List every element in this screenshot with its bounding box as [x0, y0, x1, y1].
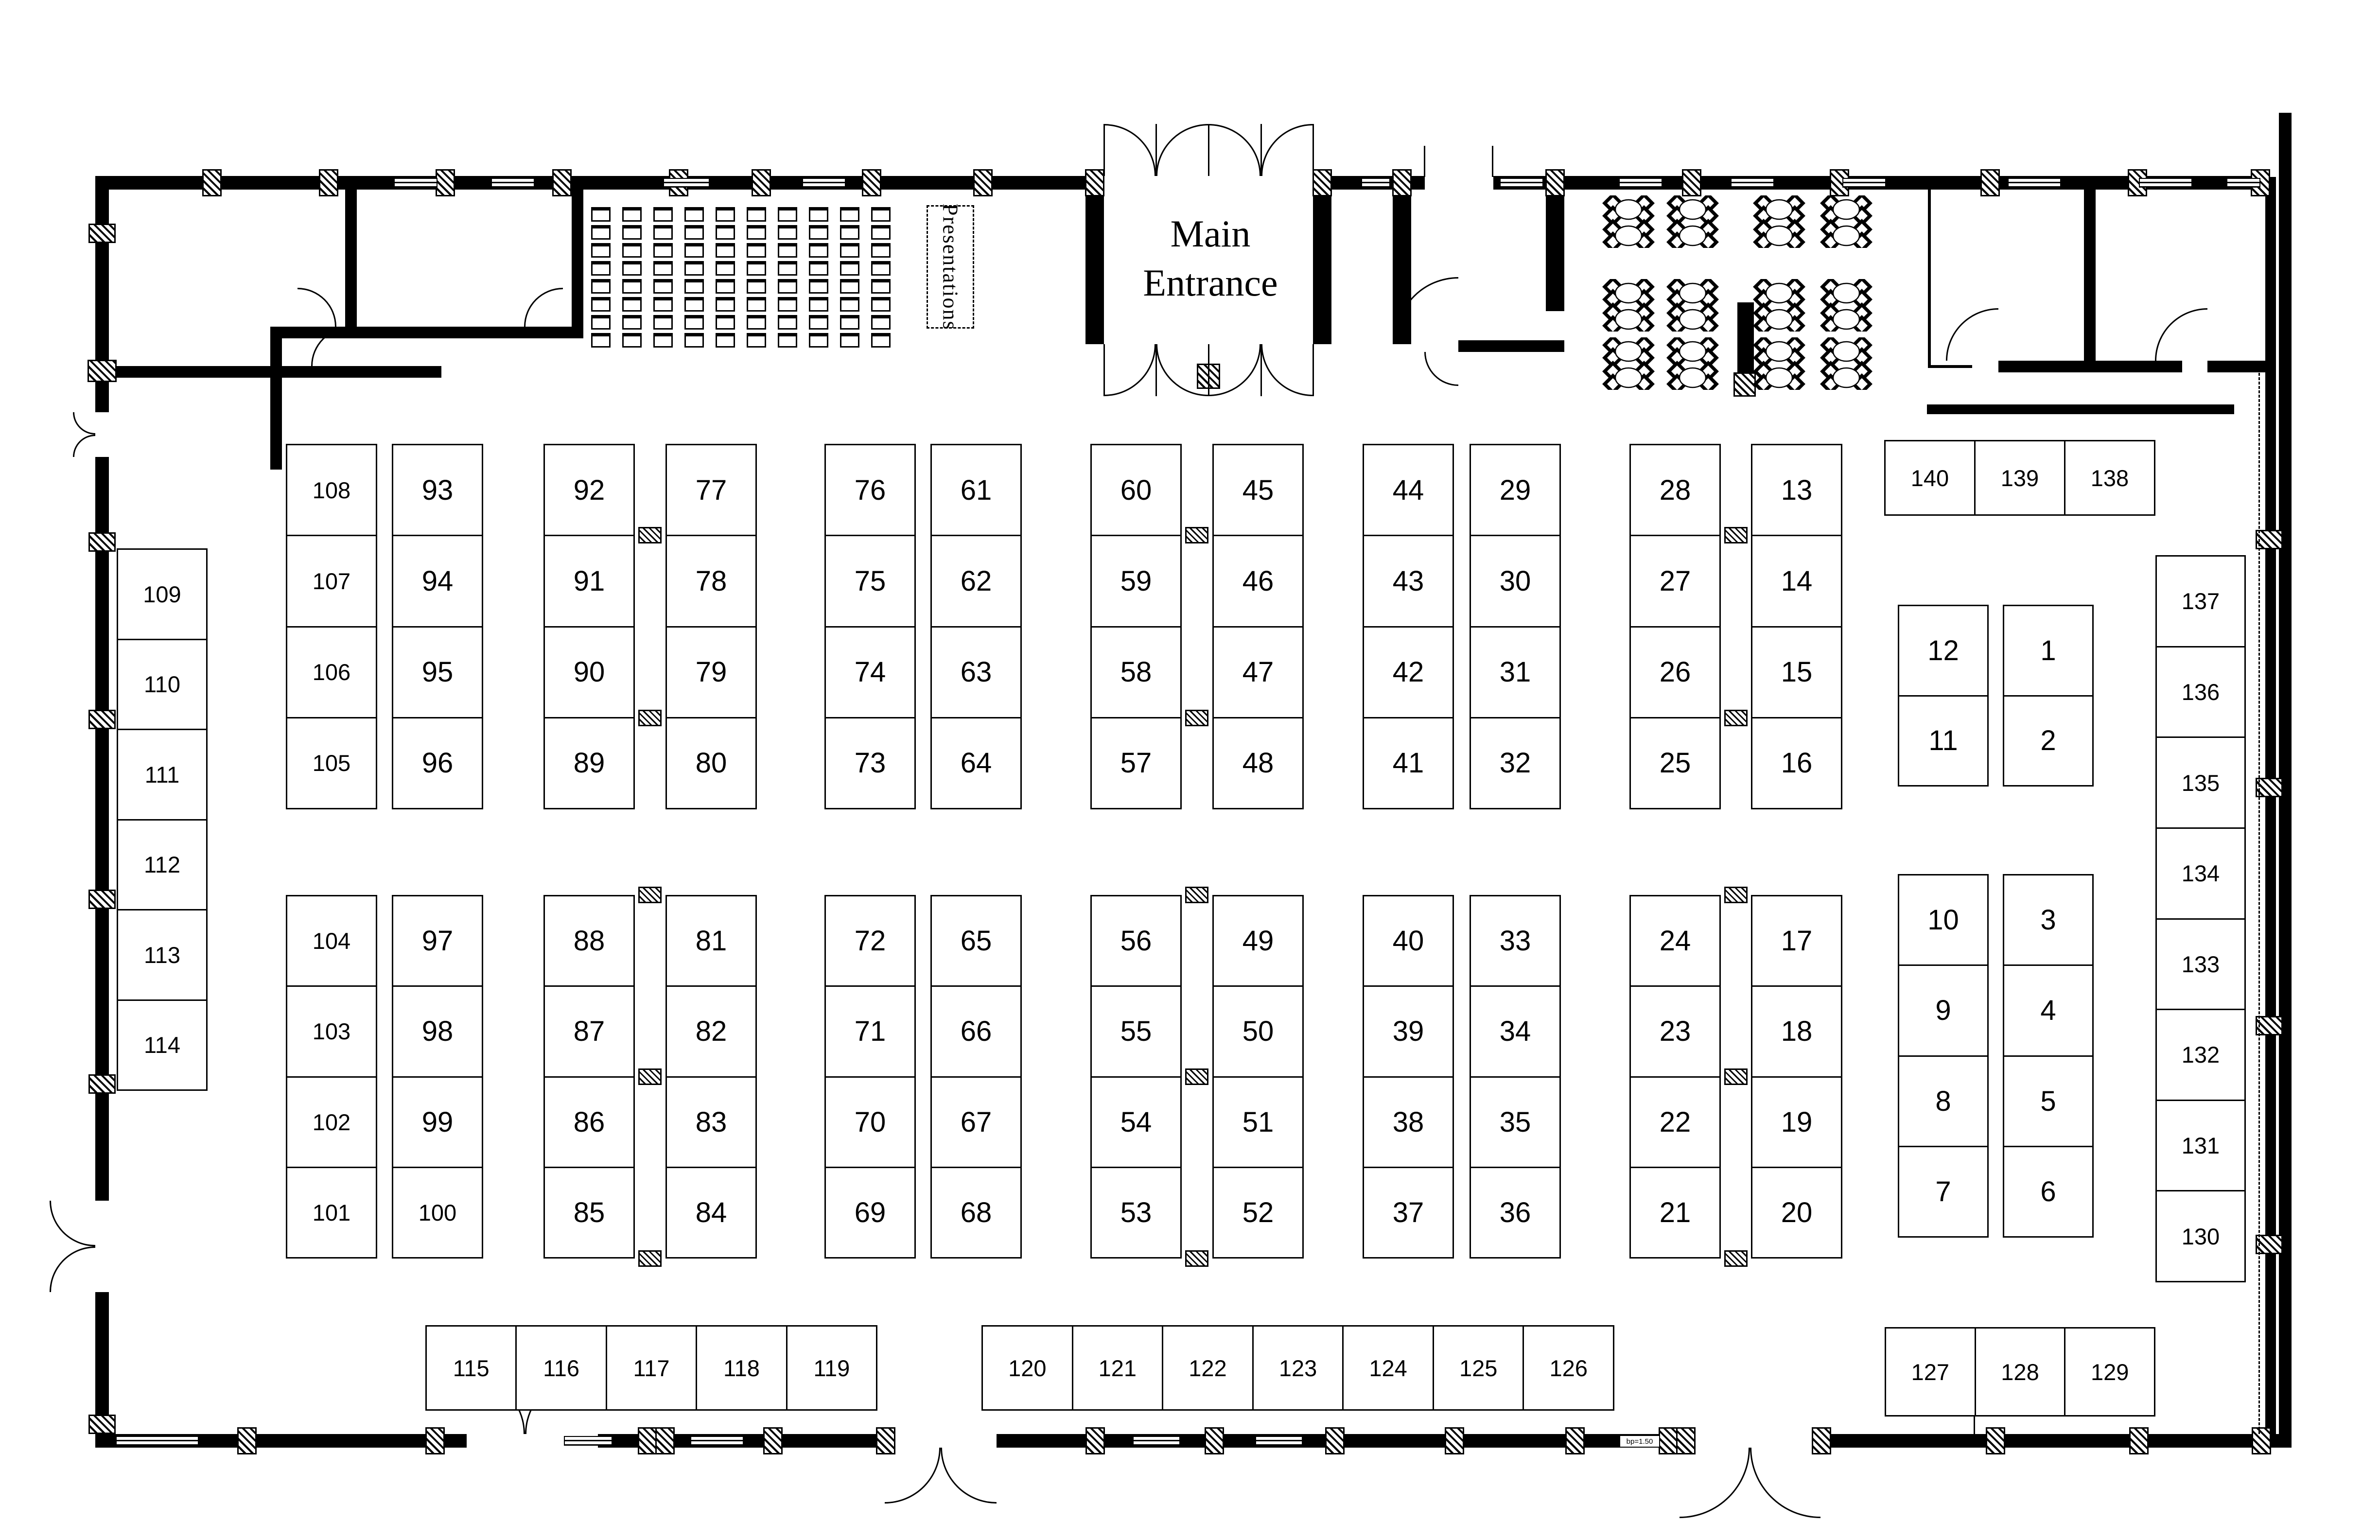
booth-59: 59: [1092, 535, 1180, 626]
presentation-chair: [622, 225, 642, 240]
booth-column: 137136135134133132131130: [2155, 555, 2246, 1282]
booth-column: 44434241: [1363, 444, 1454, 809]
booth-107: 107: [287, 535, 376, 626]
booth-65: 65: [932, 896, 1020, 985]
booth-35: 35: [1471, 1076, 1559, 1167]
presentation-chair: [684, 225, 704, 240]
structural-pillar: [1724, 527, 1748, 543]
presentation-chair: [747, 207, 766, 222]
booth-97: 97: [393, 896, 482, 985]
wall-line: [1928, 365, 1972, 368]
presentation-chair: [809, 279, 828, 294]
booth-129: 129: [2064, 1329, 2154, 1415]
wall-post: [1682, 169, 1701, 196]
presentation-chair: [622, 207, 642, 222]
window-marker: [802, 178, 846, 188]
booth-72: 72: [826, 896, 914, 985]
structural-pillar: [1185, 527, 1208, 543]
booth-column: 61626364: [930, 444, 1022, 809]
window-marker: [1731, 178, 1774, 188]
booth-10: 10: [1899, 875, 1987, 964]
booth-6: 6: [2004, 1146, 2092, 1236]
window-marker: [491, 178, 535, 188]
presentation-chair: [871, 261, 891, 276]
booth-96: 96: [393, 717, 482, 808]
booth-51: 51: [1214, 1076, 1302, 1167]
window-marker: [1255, 1436, 1303, 1446]
booth-column: 92919089: [543, 444, 635, 809]
table-group: [1819, 337, 1873, 390]
booth-8: 8: [1899, 1055, 1987, 1146]
structural-pillar: [638, 527, 662, 543]
wall-line: [1424, 146, 1425, 177]
booth-75: 75: [826, 535, 914, 626]
booth-27: 27: [1631, 535, 1719, 626]
booth-99: 99: [393, 1076, 482, 1167]
window-marker: [2139, 178, 2192, 188]
booth-110: 110: [118, 639, 206, 729]
presentation-chair: [684, 297, 704, 312]
booth-71: 71: [826, 985, 914, 1076]
booth-55: 55: [1092, 985, 1180, 1076]
booth-column: 45464748: [1212, 444, 1304, 809]
presentation-chair: [778, 207, 797, 222]
booth-column: 60595857: [1090, 444, 1182, 809]
presentation-chair: [653, 297, 673, 312]
wall-post: [1205, 1427, 1224, 1454]
booth-22: 22: [1631, 1076, 1719, 1167]
wall-segment: [95, 176, 1087, 190]
presentation-chair: [622, 315, 642, 330]
booth-95: 95: [393, 626, 482, 717]
presentation-chair: [653, 261, 673, 276]
wall-post: [88, 890, 116, 909]
booth-57: 57: [1092, 717, 1180, 808]
wall-post: [1445, 1427, 1464, 1454]
booth-18: 18: [1752, 985, 1841, 1076]
wall-line: [1928, 177, 1931, 368]
booth-70: 70: [826, 1076, 914, 1167]
booth-column: 56555453: [1090, 895, 1182, 1259]
structural-pillar: [1724, 887, 1748, 903]
booth-45: 45: [1214, 445, 1302, 535]
wall-post: [655, 1427, 675, 1454]
booth-125: 125: [1433, 1327, 1523, 1409]
booth-column: 93949596: [392, 444, 483, 809]
booth-108: 108: [287, 445, 376, 535]
booth-74: 74: [826, 626, 914, 717]
booth-111: 111: [118, 729, 206, 819]
booth-36: 36: [1471, 1167, 1559, 1257]
presentations-area-label: Presentations: [927, 205, 974, 329]
booth-132: 132: [2157, 1009, 2244, 1100]
booth-column: 40393837: [1363, 895, 1454, 1259]
wall-segment: [1998, 361, 2182, 372]
presentation-chair: [591, 333, 611, 348]
presentation-chair: [871, 333, 891, 348]
table-group: [1752, 337, 1806, 390]
booth-128: 128: [1975, 1329, 2065, 1415]
booth-80: 80: [667, 717, 755, 808]
booth-114: 114: [118, 999, 206, 1090]
presentation-chair: [840, 279, 859, 294]
wall-post: [1545, 169, 1565, 196]
booth-124: 124: [1342, 1327, 1433, 1409]
wall-post: [973, 169, 993, 196]
booth-123: 123: [1252, 1327, 1343, 1409]
booth-62: 62: [932, 535, 1020, 626]
table-group: [1601, 337, 1656, 390]
booth-54: 54: [1092, 1076, 1180, 1167]
wall-post: [88, 1074, 116, 1094]
wall-post: [752, 169, 771, 196]
booth-82: 82: [667, 985, 755, 1076]
booth-140: 140: [1886, 441, 1974, 514]
wall-segment: [1458, 340, 1564, 352]
presentation-chair: [684, 315, 704, 330]
structural-pillar: [1185, 710, 1208, 726]
presentation-chair: [716, 207, 735, 222]
wall-post: [88, 710, 116, 729]
booth-122: 122: [1162, 1327, 1252, 1409]
structural-pillar: [1724, 710, 1748, 726]
window-marker: [1133, 1436, 1180, 1446]
presentation-chair: [778, 315, 797, 330]
wall-segment: [1313, 190, 1331, 344]
booth-137: 137: [2157, 557, 2244, 646]
presentation-chair: [809, 261, 828, 276]
booth-21: 21: [1631, 1167, 1719, 1257]
booth-58: 58: [1092, 626, 1180, 717]
window-marker: [394, 178, 437, 188]
presentations-label-text: Presentations: [938, 204, 963, 331]
presentation-chair: [716, 243, 735, 258]
booth-60: 60: [1092, 445, 1180, 535]
presentation-chair: [871, 297, 891, 312]
booth-1: 1: [2004, 606, 2092, 695]
booth-7: 7: [1899, 1146, 1987, 1236]
booth-86: 86: [545, 1076, 633, 1167]
wall-post: [1085, 169, 1104, 196]
presentation-chair: [840, 225, 859, 240]
booth-32: 32: [1471, 717, 1559, 808]
door-arc: [50, 1201, 95, 1246]
booth-9: 9: [1899, 964, 1987, 1055]
booth-row: 140139138: [1884, 440, 2155, 516]
table-group: [1665, 279, 1720, 332]
presentation-chair: [809, 207, 828, 222]
presentation-chair: [840, 315, 859, 330]
presentation-chair: [622, 297, 642, 312]
booth-117: 117: [606, 1327, 696, 1409]
wall-post: [862, 169, 881, 196]
booth-37: 37: [1364, 1167, 1452, 1257]
booth-81: 81: [667, 896, 755, 985]
door-arc: [1104, 124, 1156, 176]
booth-116: 116: [515, 1327, 605, 1409]
presentation-chair: [684, 207, 704, 222]
door-arc: [941, 1448, 997, 1504]
wall-segment: [345, 190, 357, 327]
table-group: [1601, 195, 1656, 248]
presentation-chair: [809, 243, 828, 258]
presentation-chair: [653, 279, 673, 294]
booth-100: 100: [393, 1167, 482, 1257]
presentation-chair: [591, 279, 611, 294]
presentation-chair: [747, 297, 766, 312]
wall-post: [436, 169, 455, 196]
structural-pillar: [638, 887, 662, 903]
presentation-chair: [747, 315, 766, 330]
booth-133: 133: [2157, 918, 2244, 1009]
booth-113: 113: [118, 909, 206, 999]
door-arc: [1750, 1448, 1820, 1518]
presentation-chair: [684, 279, 704, 294]
booth-73: 73: [826, 717, 914, 808]
window-marker: [2226, 178, 2260, 188]
booth-column: 28272625: [1629, 444, 1721, 809]
wall-post: [237, 1427, 257, 1454]
wall-post: [319, 169, 338, 196]
window-marker: [690, 1436, 744, 1446]
wall-line: [1492, 146, 1493, 177]
wall-post: [2252, 1427, 2271, 1454]
wall-segment: [1546, 190, 1564, 311]
door-arc: [1261, 124, 1313, 176]
booth-89: 89: [545, 717, 633, 808]
presentation-chair: [778, 243, 797, 258]
booth-31: 31: [1471, 626, 1559, 717]
booth-column: 3456: [2003, 874, 2094, 1238]
booth-29: 29: [1471, 445, 1559, 535]
booth-column: 108107106105: [286, 444, 377, 809]
booth-column: 88878685: [543, 895, 635, 1259]
wall-line: [1974, 1417, 1975, 1434]
booth-119: 119: [786, 1327, 876, 1409]
door-arc: [1261, 344, 1313, 396]
wall-post: [1980, 169, 2000, 196]
booth-69: 69: [826, 1167, 914, 1257]
door-arc: [1156, 124, 1208, 176]
booth-120: 120: [983, 1327, 1072, 1409]
door-arc: [885, 1448, 941, 1504]
presentation-chair: [840, 261, 859, 276]
presentation-chair: [653, 333, 673, 348]
door-arc: [1946, 308, 1998, 361]
wall-post: [552, 169, 572, 196]
presentation-chair: [716, 297, 735, 312]
booth-5: 5: [2004, 1055, 2092, 1146]
wall-post: [763, 1427, 783, 1454]
wall-post: [88, 532, 116, 552]
presentation-chair: [716, 225, 735, 240]
booth-4: 4: [2004, 964, 2092, 1055]
presentation-chair: [871, 315, 891, 330]
booth-16: 16: [1752, 717, 1841, 808]
presentation-chair: [591, 315, 611, 330]
booth-56: 56: [1092, 896, 1180, 985]
door-arc: [1424, 352, 1458, 386]
wall-post: [1085, 1427, 1105, 1454]
booth-135: 135: [2157, 736, 2244, 827]
presentation-chair: [622, 243, 642, 258]
booth-53: 53: [1092, 1167, 1180, 1257]
table-group: [1819, 195, 1873, 248]
booth-93: 93: [393, 445, 482, 535]
presentation-chair: [809, 297, 828, 312]
structural-pillar: [1185, 887, 1208, 903]
booth-44: 44: [1364, 445, 1452, 535]
booth-column: 29303132: [1470, 444, 1561, 809]
booth-30: 30: [1471, 535, 1559, 626]
window-marker: [1361, 178, 1390, 188]
booth-138: 138: [2064, 441, 2154, 514]
booth-63: 63: [932, 626, 1020, 717]
booth-column: 1211: [1898, 605, 1989, 787]
window-sill-annotation: bp=1.50: [1619, 1435, 1660, 1448]
booth-11: 11: [1899, 695, 1987, 786]
presentation-chair: [778, 333, 797, 348]
booth-115: 115: [427, 1327, 515, 1409]
booth-28: 28: [1631, 445, 1719, 535]
table-group: [1665, 337, 1720, 390]
booth-91: 91: [545, 535, 633, 626]
presentation-chair: [871, 243, 891, 258]
presentation-chair: [747, 333, 766, 348]
booth-14: 14: [1752, 535, 1841, 626]
main-entrance-label: Main Entrance: [1108, 209, 1312, 308]
door-arc: [297, 288, 336, 327]
wall-post: [1565, 1427, 1585, 1454]
booth-column: 77787980: [665, 444, 757, 809]
presentation-chair: [840, 333, 859, 348]
presentation-chair: [871, 225, 891, 240]
booth-column: 979899100: [392, 895, 483, 1259]
presentation-chair: [809, 315, 828, 330]
table-group: [1752, 195, 1806, 248]
presentation-chair: [747, 279, 766, 294]
booth-48: 48: [1214, 717, 1302, 808]
booth-column: 12: [2003, 605, 2094, 787]
booth-41: 41: [1364, 717, 1452, 808]
presentation-chair: [653, 207, 673, 222]
presentation-chair: [809, 225, 828, 240]
booth-102: 102: [287, 1076, 376, 1167]
booth-47: 47: [1214, 626, 1302, 717]
presentation-chair: [591, 261, 611, 276]
booth-column: 81828384: [665, 895, 757, 1259]
presentation-chair: [591, 297, 611, 312]
booth-49: 49: [1214, 896, 1302, 985]
presentation-chair: [778, 297, 797, 312]
booth-131: 131: [2157, 1100, 2244, 1190]
booth-52: 52: [1214, 1167, 1302, 1257]
wall-segment: [572, 190, 583, 338]
booth-79: 79: [667, 626, 755, 717]
presentation-chair: [653, 225, 673, 240]
presentation-chair: [684, 333, 704, 348]
booth-121: 121: [1072, 1327, 1162, 1409]
presentation-chair: [840, 207, 859, 222]
presentation-chair: [684, 243, 704, 258]
presentation-chair: [622, 279, 642, 294]
booth-column: 17181920: [1751, 895, 1842, 1259]
booth-139: 139: [1974, 441, 2064, 514]
exhibition-floor-plan: Main Entrance Presentations bp=1.50 1081…: [0, 0, 2380, 1540]
booth-40: 40: [1364, 896, 1452, 985]
table-group: [1752, 279, 1806, 332]
booth-row: 120121122123124125126: [981, 1325, 1614, 1411]
wall-segment: [2084, 190, 2096, 361]
booth-94: 94: [393, 535, 482, 626]
booth-26: 26: [1631, 626, 1719, 717]
booth-104: 104: [287, 896, 376, 985]
booth-33: 33: [1471, 896, 1559, 985]
booth-3: 3: [2004, 875, 2092, 964]
window-marker: [1619, 178, 1662, 188]
presentation-chair: [591, 225, 611, 240]
wall-segment: [1927, 404, 2234, 414]
structural-pillar: [1185, 1250, 1208, 1267]
booth-17: 17: [1752, 896, 1841, 985]
wall-post: [638, 1427, 657, 1454]
booth-112: 112: [118, 819, 206, 910]
wall-segment: [95, 366, 441, 378]
table-group: [1819, 279, 1873, 332]
booth-78: 78: [667, 535, 755, 626]
wall-post: [1325, 1427, 1345, 1454]
structural-pillar: [1724, 1068, 1748, 1085]
presentation-chair: [716, 279, 735, 294]
wall-post: [87, 360, 117, 382]
window-marker: [1842, 178, 1886, 188]
booth-43: 43: [1364, 535, 1452, 626]
booth-34: 34: [1471, 985, 1559, 1076]
booth-column: 76757473: [824, 444, 916, 809]
booth-15: 15: [1752, 626, 1841, 717]
presentation-chair: [716, 315, 735, 330]
booth-109: 109: [118, 550, 206, 639]
booth-98: 98: [393, 985, 482, 1076]
window-marker: [2008, 178, 2061, 188]
window-marker: [564, 1436, 612, 1446]
booth-row: 127128129: [1885, 1327, 2155, 1417]
table-group: [1601, 279, 1656, 332]
presentation-chair: [653, 243, 673, 258]
door-arc: [73, 435, 95, 457]
booth-50: 50: [1214, 985, 1302, 1076]
booth-92: 92: [545, 445, 633, 535]
booth-column: 104103102101: [286, 895, 377, 1259]
wall-segment: [1820, 1434, 2291, 1448]
booth-66: 66: [932, 985, 1020, 1076]
booth-76: 76: [826, 445, 914, 535]
booth-25: 25: [1631, 717, 1719, 808]
structural-pillar: [638, 1068, 662, 1085]
presentation-chair: [809, 333, 828, 348]
booth-column: 65666768: [930, 895, 1022, 1259]
booth-column: 49505152: [1212, 895, 1304, 1259]
door-arc: [1104, 344, 1156, 396]
wall-post: [1312, 169, 1332, 196]
table-group: [1665, 195, 1720, 248]
door-arc: [1156, 344, 1208, 396]
presentation-chair: [684, 261, 704, 276]
booth-88: 88: [545, 896, 633, 985]
booth-127: 127: [1886, 1329, 1975, 1415]
booth-85: 85: [545, 1167, 633, 1257]
booth-24: 24: [1631, 896, 1719, 985]
